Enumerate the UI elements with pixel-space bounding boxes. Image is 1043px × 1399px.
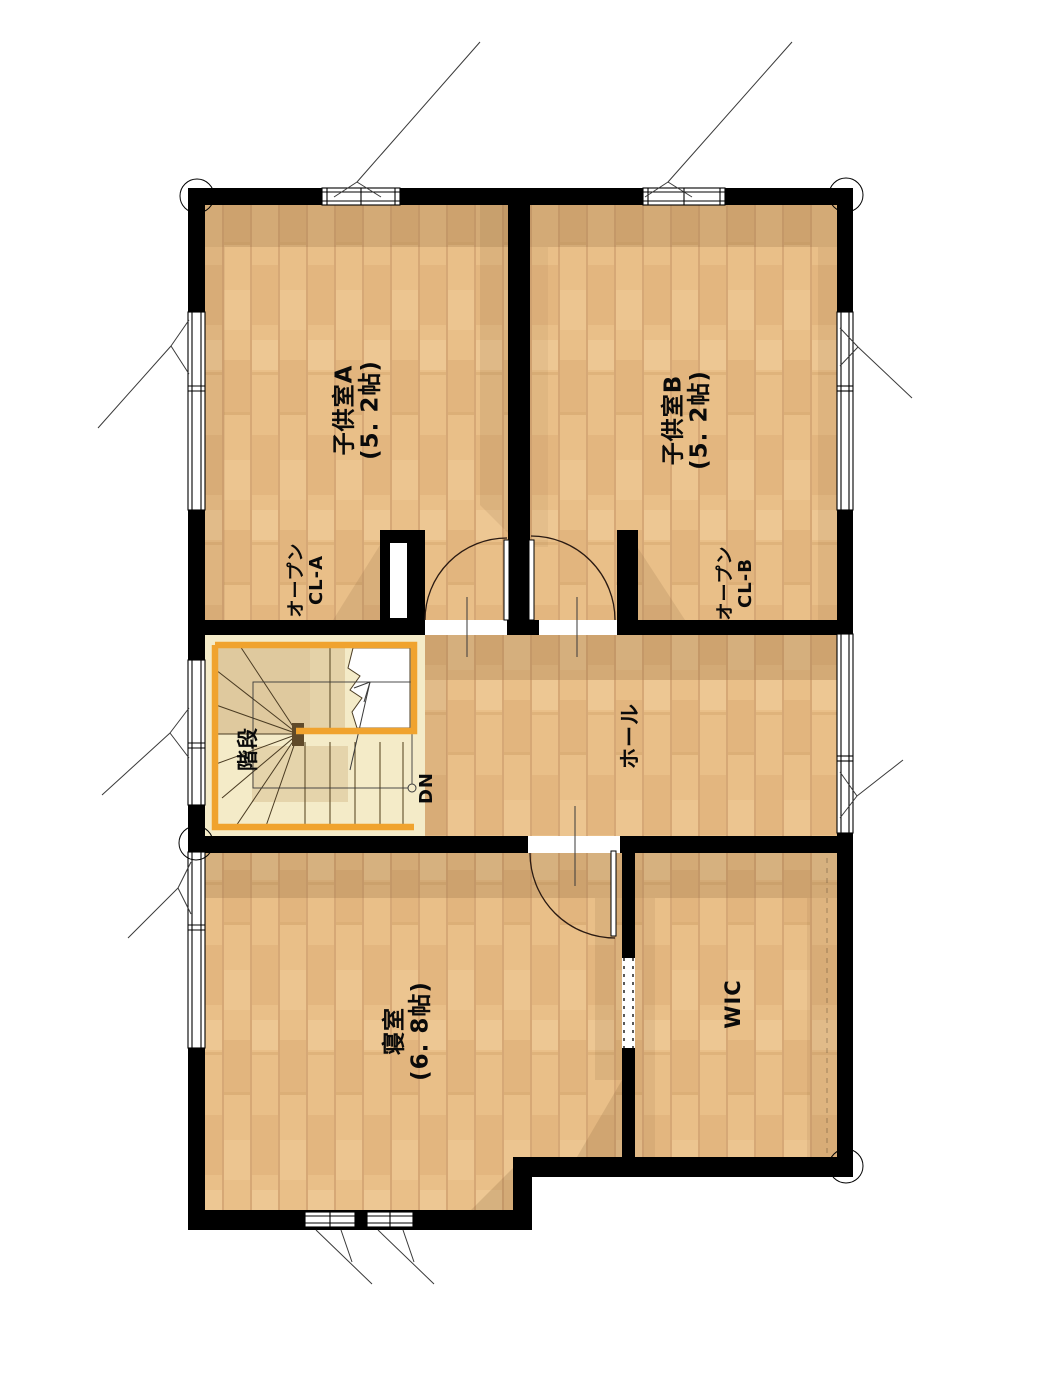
wall-rooms-hall <box>205 620 837 635</box>
room-label-kodomo-a: 子供室A (5. 2帖) <box>332 360 384 460</box>
wall-room-divider <box>508 188 530 635</box>
room-name: WIC <box>722 979 746 1028</box>
window-left-bedroom <box>188 852 205 1048</box>
room-name: 寝室 <box>382 981 408 1081</box>
room-label-shinshitsu: 寝室 (6. 8帖) <box>382 981 434 1081</box>
stair-newel-post <box>292 723 304 746</box>
door-opening-kodomo-b <box>539 620 617 635</box>
wall-hall-bottom <box>205 836 837 853</box>
window-left-a <box>188 312 205 510</box>
pipe-space <box>390 543 407 618</box>
floor-plan: 子供室A (5. 2帖) 子供室B (5. 2帖) 寝室 (6. 8帖) ホール… <box>0 0 1043 1399</box>
wall-bottom <box>188 1210 532 1230</box>
window-bottom-1 <box>305 1212 355 1227</box>
room-name: ホール <box>619 703 643 769</box>
room-size: (6. 8帖) <box>408 981 434 1081</box>
window-right-hall <box>837 634 853 833</box>
wall-bottom-right <box>513 1157 853 1177</box>
closet-type: オープン <box>287 543 307 618</box>
wall-cl-b-stub <box>617 530 638 622</box>
room-label-kodomo-b: 子供室B (5. 2帖) <box>661 370 713 470</box>
window-right-b <box>837 312 853 510</box>
closet-label-cl-a: オープン CL-A <box>287 543 327 618</box>
window-bottom-2 <box>367 1212 413 1227</box>
room-label-kaidan: 階段 <box>237 727 261 771</box>
room-size: (5. 2帖) <box>687 370 713 470</box>
closet-label-cl-b: オープン CL-B <box>716 546 756 621</box>
room-name: 子供室B <box>661 370 687 470</box>
stair-direction-text: DN <box>417 772 437 804</box>
door-leaf-kodomo-a <box>504 540 509 620</box>
stair-entry-marker <box>408 784 416 792</box>
stair-break-line <box>348 648 410 728</box>
room-size: (5. 2帖) <box>358 360 384 460</box>
stair-direction-label: DN <box>417 772 437 804</box>
door-leaf-kodomo-b <box>529 540 534 620</box>
room-name: 子供室A <box>332 360 358 460</box>
door-leaf-shinshitsu <box>611 851 616 936</box>
floor-plan-canvas <box>0 0 1043 1399</box>
window-top-a <box>322 188 400 205</box>
closet-name: CL-B <box>736 546 756 621</box>
door-opening-shinshitsu <box>528 836 620 853</box>
door-opening-kodomo-a <box>425 620 507 635</box>
room-label-wic: WIC <box>722 979 746 1028</box>
window-left-stairs <box>188 660 205 805</box>
opening-wic <box>622 958 635 1048</box>
room-label-hall: ホール <box>619 703 643 769</box>
room-name: 階段 <box>237 727 261 771</box>
closet-name: CL-A <box>307 543 327 618</box>
closet-type: オープン <box>716 546 736 621</box>
